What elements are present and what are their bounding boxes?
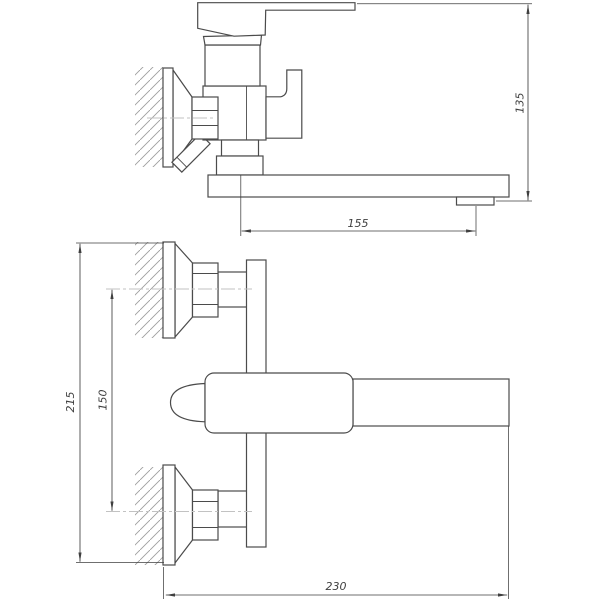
diverter-outlet: [266, 70, 302, 138]
spout-front: [353, 379, 509, 426]
dim-135-label: 135: [514, 93, 527, 114]
wall-hatch-top: [135, 242, 163, 338]
dim-150-label: 150: [97, 390, 110, 411]
spout-adapter-upper: [222, 140, 259, 156]
faucet-technical-drawing: 135 155 215 150: [0, 0, 600, 600]
spout-side: [208, 175, 509, 197]
wall-flange-top: [163, 242, 175, 338]
eccentric-cone-top: [175, 244, 193, 338]
hex-nut-top: [193, 263, 219, 317]
dim-230-label: 230: [326, 580, 347, 593]
dim-215-label: 215: [64, 392, 77, 413]
wall-flange-bottom: [163, 465, 175, 565]
spout-adapter-lower: [217, 156, 264, 175]
dim-155-label: 155: [348, 217, 369, 230]
wall-flange: [163, 68, 173, 167]
front-view: [106, 242, 509, 565]
hex-nut-bottom: [193, 490, 219, 540]
lever-handle-side: [198, 3, 355, 37]
mixer-body-front: [205, 373, 353, 433]
side-view: [135, 3, 509, 205]
drawing-canvas: 135 155 215 150: [0, 0, 600, 600]
wall-hatch: [135, 67, 163, 167]
eccentric-cone-bottom: [175, 467, 193, 563]
connector-pipe-bottom: [218, 491, 247, 527]
cartridge-housing: [205, 45, 260, 86]
wall-hatch-bottom: [135, 467, 163, 565]
lever-handle-front: [171, 384, 206, 422]
handle-collar: [204, 35, 262, 45]
aerator-side: [457, 197, 495, 205]
connector-pipe-top: [218, 272, 247, 307]
